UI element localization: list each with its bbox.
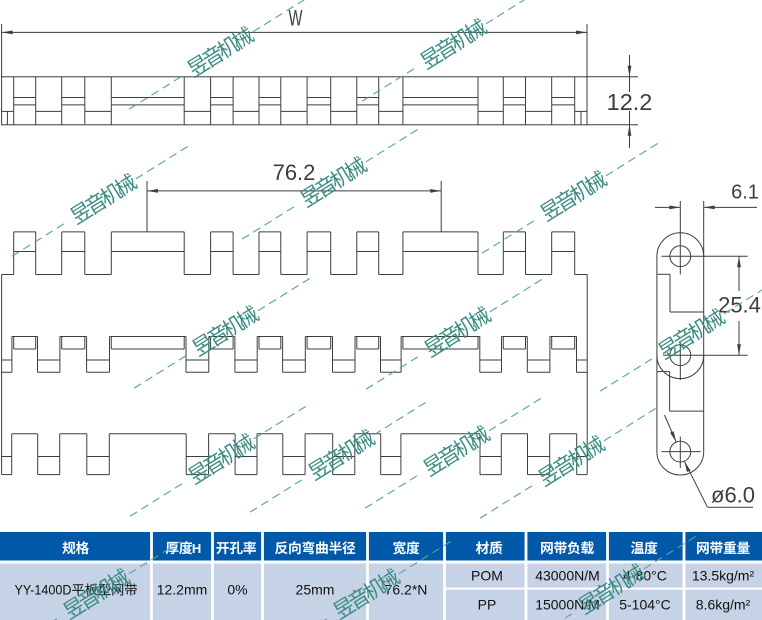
svg-text:6.1: 6.1 (731, 182, 759, 204)
svg-text:ø6.0: ø6.0 (711, 483, 755, 508)
svg-text:0%: 0% (227, 582, 247, 598)
svg-text:YY-1400D: YY-1400D (15, 583, 72, 598)
svg-text:5-104°C: 5-104°C (619, 597, 671, 613)
svg-text:76.2: 76.2 (273, 160, 316, 185)
svg-text:8.6kg/m²: 8.6kg/m² (696, 597, 751, 613)
svg-text:H: H (192, 541, 201, 556)
svg-text:12.2mm: 12.2mm (157, 582, 208, 598)
svg-text:POM: POM (471, 568, 503, 584)
svg-text:25mm: 25mm (296, 582, 335, 598)
svg-text:76.2*N: 76.2*N (385, 582, 428, 598)
svg-text:13.5kg/m²: 13.5kg/m² (692, 568, 755, 584)
svg-text:W: W (289, 6, 303, 31)
svg-text:PP: PP (478, 597, 497, 613)
svg-text:12.2: 12.2 (607, 89, 653, 115)
svg-text:43000N/M: 43000N/M (535, 568, 600, 584)
